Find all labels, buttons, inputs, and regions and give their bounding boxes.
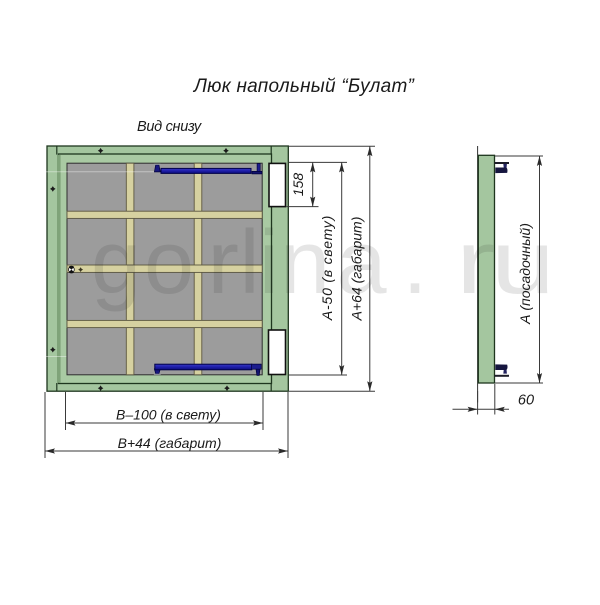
svg-text:Люк напольный “Булат”: Люк напольный “Булат” xyxy=(192,76,416,97)
svg-text:o: o xyxy=(144,213,194,313)
svg-text:Вид снизу: Вид снизу xyxy=(137,119,202,135)
svg-text:g: g xyxy=(91,213,141,313)
svg-text:60: 60 xyxy=(518,393,534,409)
svg-text:В–100 (в свету): В–100 (в свету) xyxy=(116,407,221,423)
svg-text:.: . xyxy=(403,213,428,313)
svg-text:u: u xyxy=(491,211,555,312)
svg-text:i: i xyxy=(259,213,279,313)
svg-text:r: r xyxy=(207,211,239,312)
svg-text:r: r xyxy=(456,213,496,313)
svg-text:n: n xyxy=(280,213,330,313)
svg-text:a: a xyxy=(337,213,388,313)
svg-text:158: 158 xyxy=(290,173,306,197)
svg-text:В+44 (габарит): В+44 (габарит) xyxy=(118,435,222,451)
svg-text:l: l xyxy=(240,213,260,313)
